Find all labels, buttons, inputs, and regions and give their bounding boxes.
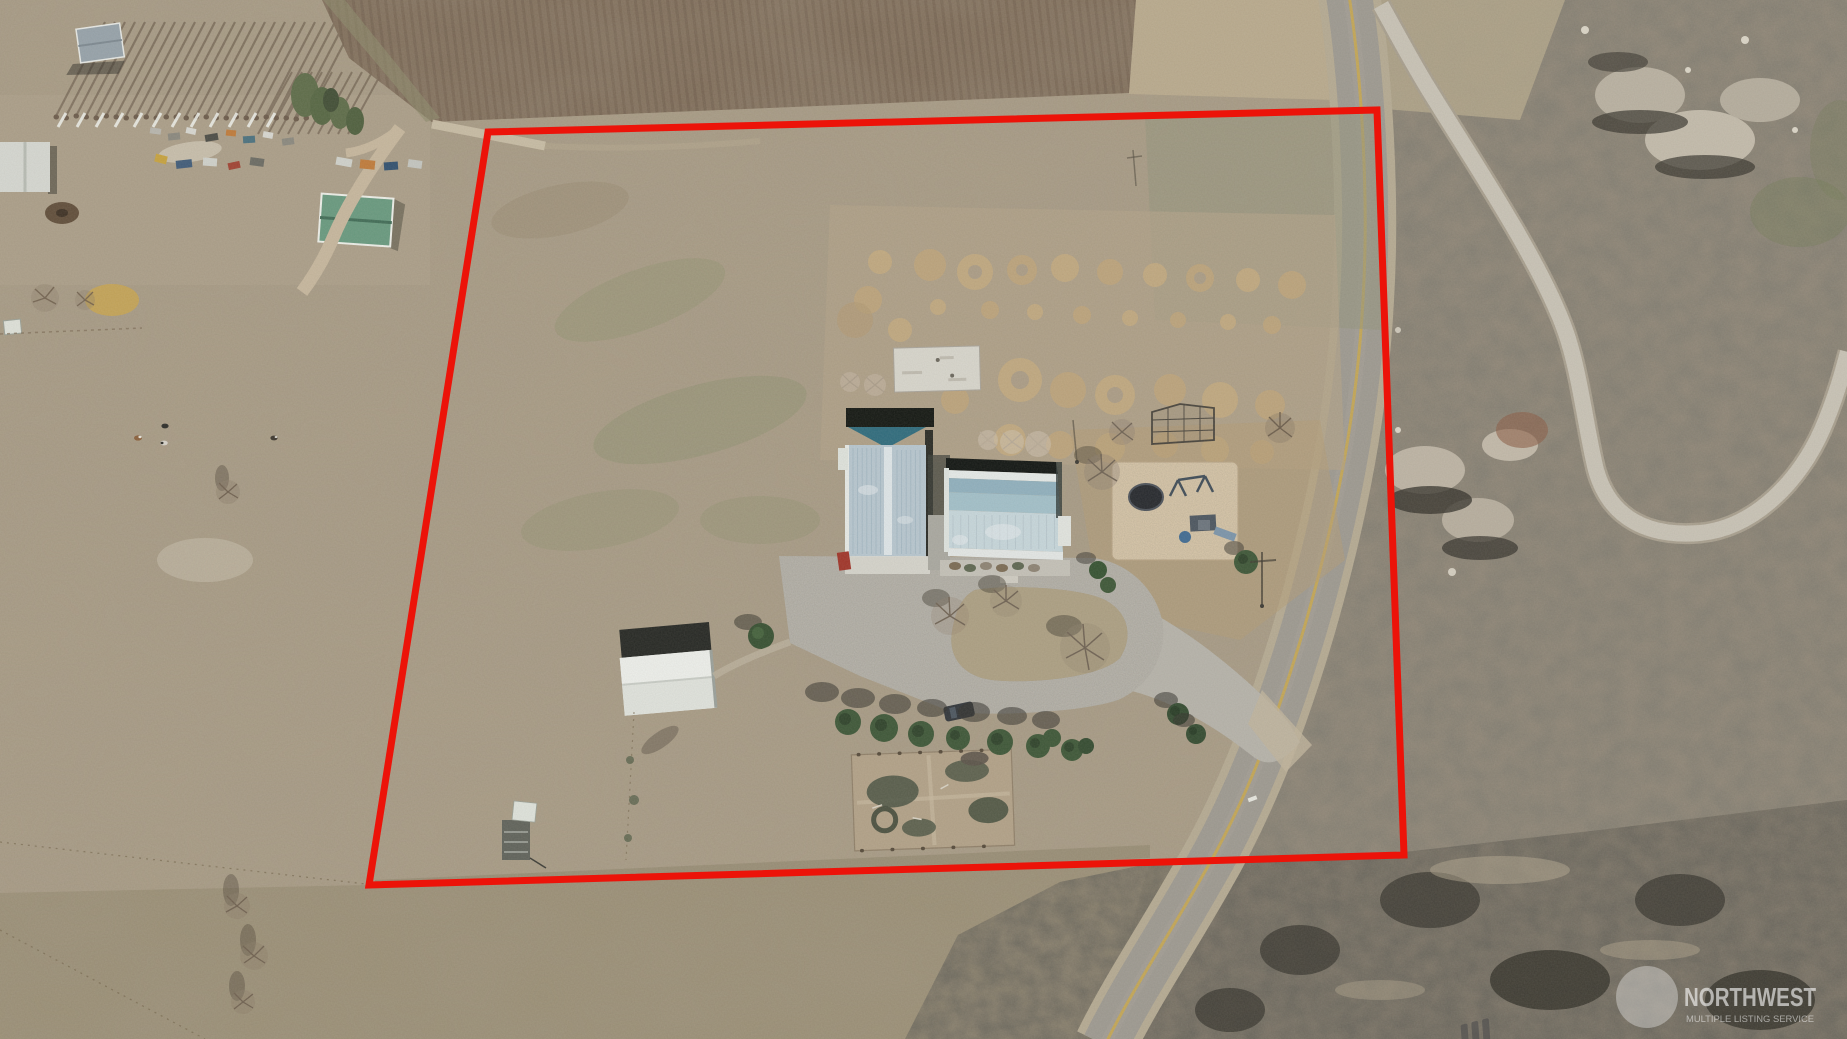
- mls-logo-circle: [1616, 966, 1678, 1028]
- film-grain-light: [0, 0, 1847, 1039]
- watermark-tagline: MULTIPLE LISTING SERVICE: [1686, 1014, 1814, 1025]
- watermark-brand: NORTHWEST: [1684, 982, 1816, 1012]
- aerial-photo: NORTHWEST MULTIPLE LISTING SERVICE: [0, 0, 1847, 1039]
